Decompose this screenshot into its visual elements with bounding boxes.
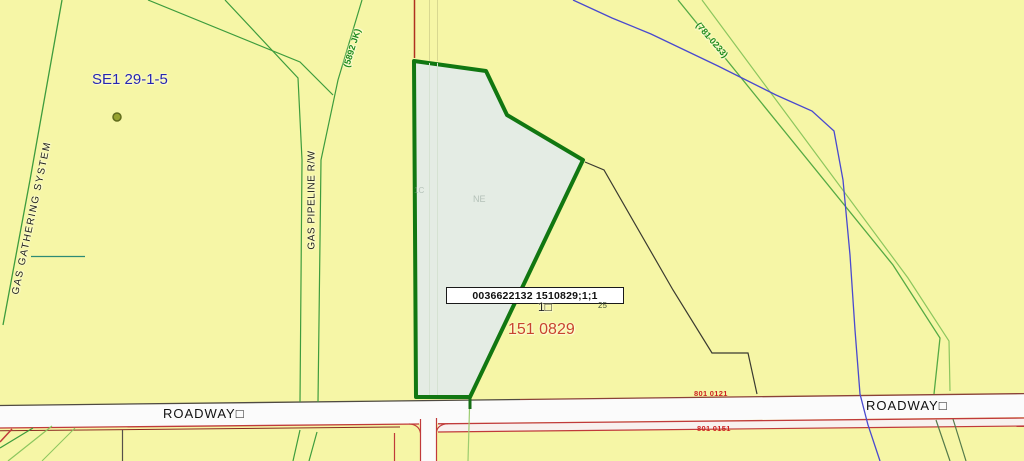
vertical-road-surface <box>421 416 436 461</box>
section-label: SE1 29-1-5 <box>92 71 168 88</box>
roadway-label-right: ROADWAY□ <box>866 398 948 413</box>
road-plan-upper-label: 801 0121 <box>694 389 728 398</box>
pipeline-bottom-left-1 <box>8 426 52 461</box>
parcel-faint-label-center: NE <box>473 194 486 204</box>
gas-gathering-polyline <box>3 0 62 325</box>
pipeline-bottom-left-3 <box>42 428 75 461</box>
parcel-faint-label-left: 1C <box>414 186 424 195</box>
pipeline-below-road-2 <box>309 432 317 461</box>
pipeline-below-road-1 <box>293 430 300 461</box>
map-layers <box>0 0 1024 461</box>
map-canvas[interactable]: SE1 29-1-5 GAS GATHERING SYSTEM GAS PIPE… <box>0 0 1024 461</box>
selected-parcel-id: 0036622132 1510829;1;1 <box>472 290 597 302</box>
intersection-corner-left <box>409 424 421 433</box>
plan-number-label: 151 0829 <box>508 321 575 339</box>
pipeline-west-line <box>225 0 302 402</box>
well-point-marker <box>113 113 121 121</box>
selected-parcel-polygon[interactable] <box>414 61 583 397</box>
roadway-label-left: ROADWAY□ <box>163 406 245 421</box>
lot-number-label: 1□ <box>538 300 552 314</box>
pipeline-right-east-line <box>702 0 950 391</box>
adjacent-parcel-boundary <box>585 162 757 394</box>
gas-pipeline-rw-label: GAS PIPELINE R/W <box>307 150 318 249</box>
adjacent-lot-number-label: 25 <box>598 301 607 310</box>
pipeline-branch <box>148 0 333 95</box>
pipeline-east-line <box>318 0 362 402</box>
road-plan-lower-label: 801 0151 <box>697 424 731 433</box>
pipeline-right-west-line <box>678 0 940 394</box>
